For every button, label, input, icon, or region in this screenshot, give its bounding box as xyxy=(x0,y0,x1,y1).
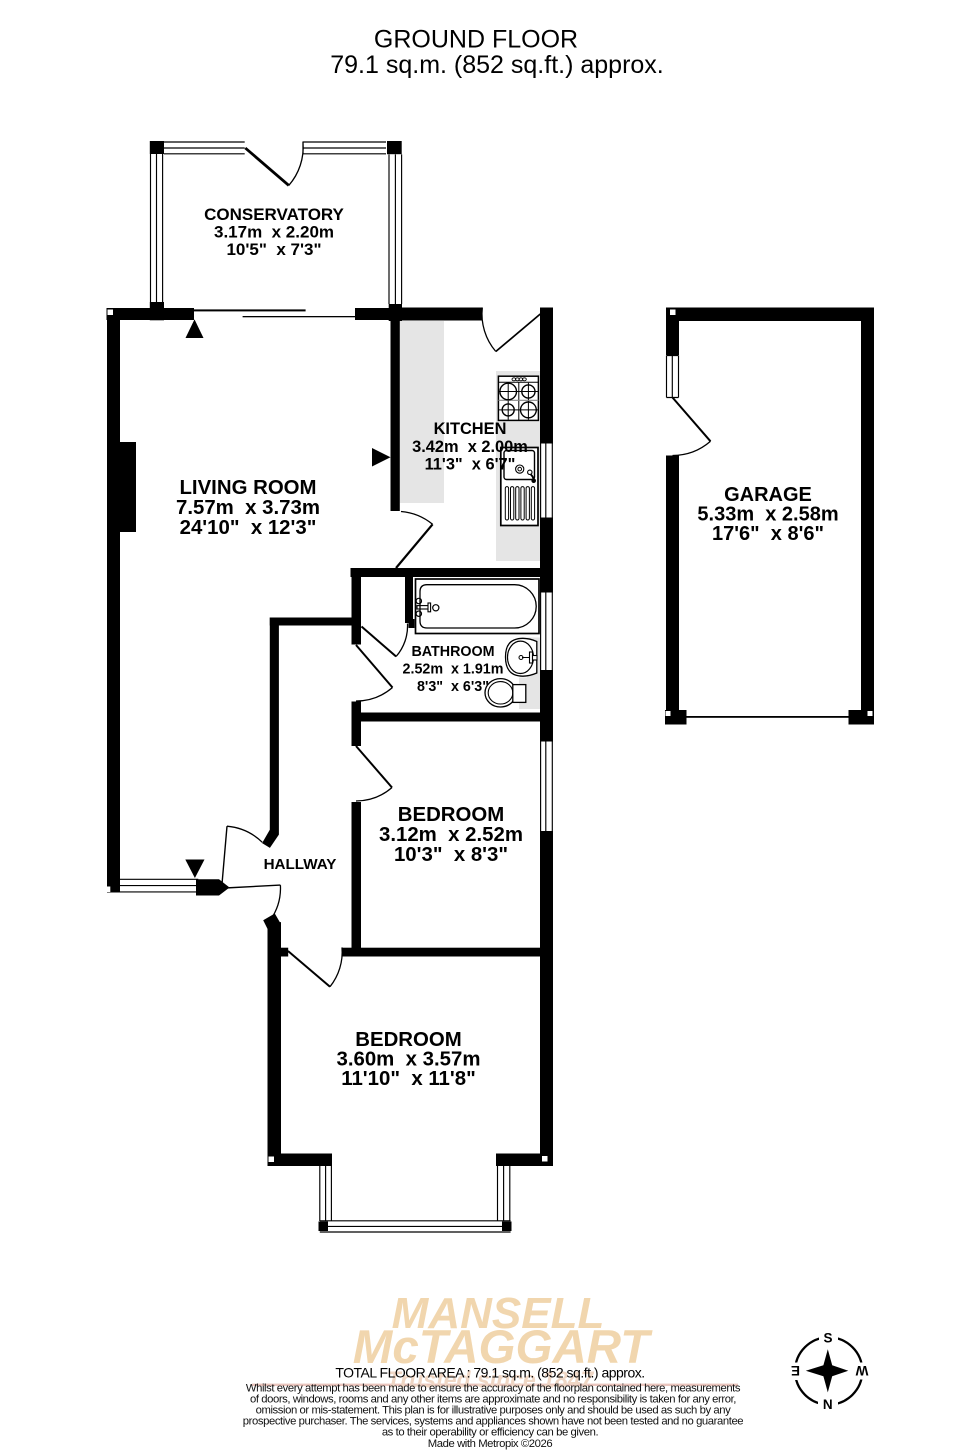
svg-text:GROUND FLOOR: GROUND FLOOR xyxy=(374,26,578,54)
svg-text:10'5" x 7'3": 10'5" x 7'3" xyxy=(226,240,321,259)
svg-text:KITCHEN: KITCHEN xyxy=(434,420,507,438)
svg-text:79.1 sq.m. (852 sq.ft.) approx: 79.1 sq.m. (852 sq.ft.) approx. xyxy=(330,51,664,79)
svg-text:7.57m x 3.73m: 7.57m x 3.73m xyxy=(176,497,320,519)
svg-text:24'10" x 12'3": 24'10" x 12'3" xyxy=(180,517,317,539)
svg-text:E: E xyxy=(791,1363,800,1378)
svg-text:2.52m x 1.91m: 2.52m x 1.91m xyxy=(403,662,504,678)
svg-text:S: S xyxy=(823,1331,832,1346)
svg-text:17'6" x 8'6": 17'6" x 8'6" xyxy=(712,523,824,545)
svg-text:8'3" x 6'3": 8'3" x 6'3" xyxy=(417,679,489,695)
svg-text:BEDROOM: BEDROOM xyxy=(398,804,504,826)
svg-text:11'10" x 11'8": 11'10" x 11'8" xyxy=(341,1068,476,1090)
svg-text:as to their operability or eff: as to their operability or efficiency ca… xyxy=(382,1427,599,1439)
svg-text:BATHROOM: BATHROOM xyxy=(411,644,494,660)
svg-text:3.42m x 2.00m: 3.42m x 2.00m xyxy=(412,438,528,456)
svg-text:3.12m x 2.52m: 3.12m x 2.52m xyxy=(379,824,523,846)
svg-text:CONSERVATORY: CONSERVATORY xyxy=(204,205,344,224)
svg-text:TOTAL FLOOR AREA : 79.1 sq.m.: TOTAL FLOOR AREA : 79.1 sq.m. (852 sq.ft… xyxy=(335,1365,644,1381)
svg-text:3.17m x 2.20m: 3.17m x 2.20m xyxy=(214,223,334,242)
svg-text:W: W xyxy=(855,1363,868,1378)
svg-text:HALLWAY: HALLWAY xyxy=(264,856,337,873)
svg-text:N: N xyxy=(823,1397,833,1412)
svg-text:LIVING ROOM: LIVING ROOM xyxy=(179,477,316,499)
svg-text:10'3" x 8'3": 10'3" x 8'3" xyxy=(394,844,508,866)
svg-text:11'3" x 6'7": 11'3" x 6'7" xyxy=(425,456,516,474)
svg-text:Made with Metropix ©2026: Made with Metropix ©2026 xyxy=(428,1438,553,1450)
